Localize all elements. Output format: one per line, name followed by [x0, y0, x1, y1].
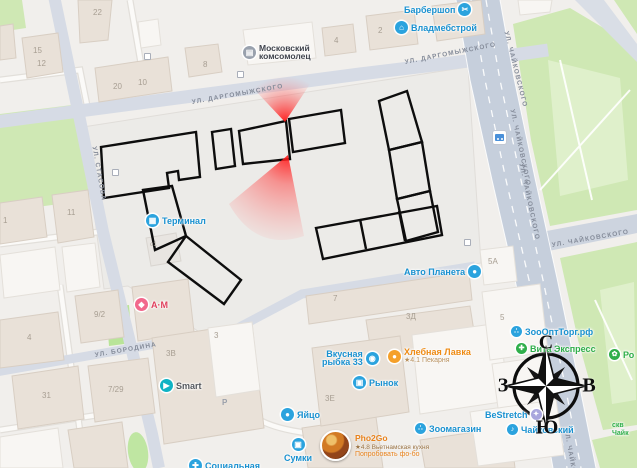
building-number: 31 [42, 391, 51, 400]
bag-icon: ▣ [292, 438, 305, 451]
poi-rynok[interactable]: ▣ Рынок [353, 376, 398, 389]
building-number: 8 [203, 60, 207, 69]
building-number: 3В [166, 349, 176, 358]
building-number: 4 [27, 333, 31, 342]
restaurant-icon: ◆ [135, 298, 148, 311]
car-icon: ● [468, 265, 481, 278]
poi-khlebnaya-lavka[interactable]: ● Хлебная Лавка ★4.1 Пекарня [388, 348, 471, 364]
poi-bestretch[interactable]: BeStretch ✦ [485, 409, 542, 420]
building-number: 5 [500, 313, 504, 322]
poi-terminal[interactable]: ▦ Терминал [146, 214, 206, 227]
egg-icon: ● [281, 408, 294, 421]
ad-title: Pho2Go [355, 433, 429, 443]
map-canvas[interactable]: ул. Даргомыжского ул. Даргомыжского ул. … [0, 0, 637, 468]
label-line1: скв [612, 422, 629, 430]
transit-stop-icon [464, 239, 471, 246]
arrow-icon: ▶ [160, 379, 173, 392]
building-number: 15 [33, 46, 42, 55]
ad-pho2go[interactable]: Pho2Go ★4.8 Вьетнамская кухня Попробоват… [320, 430, 429, 461]
paw-icon: ∴ [511, 326, 522, 337]
ad-cta[interactable]: Попробовать фо-бо [355, 451, 429, 458]
plus-icon: ✚ [516, 343, 527, 354]
poi-sublabel: ★4.1 Пекарня [404, 356, 471, 364]
bread-icon: ● [388, 350, 401, 363]
poi-smart[interactable]: ▶ Smart [160, 379, 202, 392]
poi-label: Владмебстрой [411, 23, 477, 33]
poi-label: А·М [151, 300, 168, 310]
compass-east-label: В [582, 375, 595, 398]
poi-label: Smart [176, 381, 202, 391]
poi-ro-cut[interactable]: ✿ Ро [609, 349, 634, 360]
bus-stop-icon[interactable] [492, 130, 507, 145]
poi-label: Сумки [284, 453, 312, 463]
poi-barbershop[interactable]: Барбершоп ✂ [404, 3, 471, 16]
terminal-icon: ▦ [146, 214, 159, 227]
compass-south-label: Ю [536, 417, 559, 440]
poi-label: Авто Планета [404, 267, 465, 277]
poi-label: BeStretch [485, 410, 528, 420]
building-number: 3Е [325, 394, 335, 403]
scissors-icon: ✂ [458, 3, 471, 16]
building-number: 10 [138, 78, 147, 87]
flower-icon: ✿ [609, 349, 620, 360]
fish-icon: ◉ [366, 352, 379, 365]
poi-label-line2: рыбка 33 [322, 358, 363, 366]
poi-label: Рынок [369, 378, 398, 388]
map-base [0, 0, 637, 468]
poi-yaytso[interactable]: ● Яйцо [281, 408, 320, 421]
poi-avto-planeta[interactable]: Авто Планета ● [404, 265, 481, 278]
compass-north-label: С [539, 332, 553, 355]
compass-west-label: З [498, 375, 509, 398]
label-skver: скв Чайк [612, 422, 629, 438]
parking-marker: P [222, 398, 227, 407]
poi-vkusnaya-rybka[interactable]: Вкусная рыбка 33 ◉ [322, 350, 379, 366]
building-number: 2 [378, 26, 382, 35]
building-number: 11 [67, 208, 75, 217]
newspaper-icon: ▤ [243, 46, 256, 59]
plus-icon: ✚ [189, 459, 202, 468]
building-number: 7 [333, 294, 337, 303]
poi-label: Социальная [205, 461, 260, 468]
building-number: 4 [334, 36, 338, 45]
building-number: 7/29 [108, 385, 124, 394]
building-number: 9/2 [94, 310, 105, 319]
ad-photo [320, 430, 351, 461]
building-number: 22 [93, 8, 102, 17]
poi-vita-express[interactable]: ✚ Вита Экспресс [516, 343, 596, 354]
poi-sumki[interactable]: ▣ Сумки [284, 438, 312, 463]
building-number: 20 [113, 82, 122, 91]
poi-label: Терминал [162, 216, 206, 226]
poi-moskovsky-komsomolets[interactable]: ▤ Московский комсомолец [243, 44, 311, 60]
transit-stop-icon [144, 53, 151, 60]
poi-label: ЗооОптТорг.рф [525, 327, 593, 337]
building-number: 3 [214, 331, 218, 340]
basket-icon: ▣ [353, 376, 366, 389]
ad-rating: ★4.8 Вьетнамская кухня [355, 443, 429, 451]
building-number: 1 [3, 216, 7, 225]
poi-label: Хлебная Лавка [404, 348, 471, 356]
poi-label: Яйцо [297, 410, 320, 420]
transit-stop-icon [112, 169, 119, 176]
building-number: 5А [488, 257, 498, 266]
poi-label: Ро [623, 350, 634, 360]
transit-stop-icon [237, 71, 244, 78]
building-number: 12 [37, 59, 46, 68]
poi-label: Барбершоп [404, 5, 455, 15]
poi-a-m[interactable]: ◆ А·М [135, 298, 168, 311]
poi-label: Зоомагазин [429, 424, 481, 434]
furniture-icon: ⌂ [395, 21, 408, 34]
poi-vladmebstroy[interactable]: ⌂ Владмебстрой [395, 21, 477, 34]
label-line2: Чайк [612, 430, 629, 438]
poi-sotsialnaya[interactable]: ✚ Социальная [189, 459, 260, 468]
building-number: с1 [150, 241, 157, 248]
building-number: 3Д [406, 312, 416, 321]
music-icon: ♪ [507, 424, 518, 435]
poi-label-line2: комсомолец [259, 52, 311, 60]
